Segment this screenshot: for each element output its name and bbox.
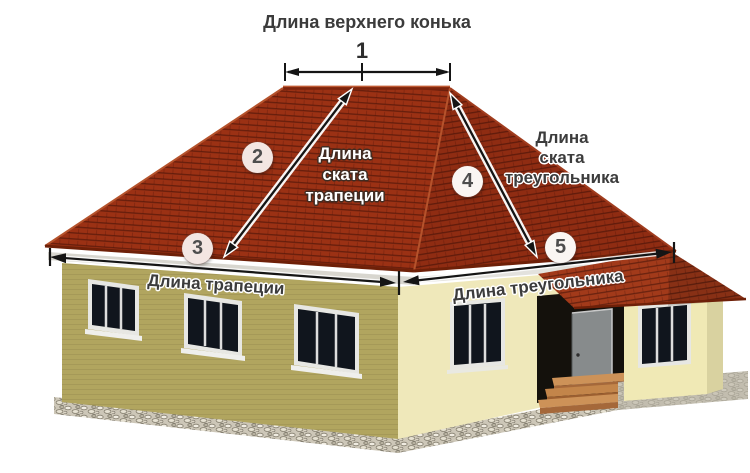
window-5	[638, 301, 691, 368]
label-line: Длина	[505, 128, 619, 148]
porch-roof-shading	[668, 251, 746, 306]
label-line: ската	[505, 148, 619, 168]
door-handle	[576, 353, 579, 356]
house-roof-measurement-diagram: Длина верхнего конька 1 2 3 4 5 Длина ск…	[0, 0, 750, 473]
marker-2: 2	[242, 142, 273, 173]
marker-1: 1	[356, 38, 368, 64]
marker-4: 4	[452, 166, 483, 197]
arrow-ridge-length	[285, 63, 450, 81]
label-trapezoid-slope: Длина ската трапеции	[305, 143, 384, 206]
porch-wall-side	[707, 287, 723, 394]
label-line: ската	[305, 164, 384, 185]
marker-3: 3	[182, 233, 213, 264]
house-illustration	[0, 0, 750, 473]
window-3	[291, 304, 362, 379]
window-2	[181, 293, 245, 361]
diagram-title: Длина верхнего конька	[263, 12, 471, 33]
window-1	[85, 279, 142, 341]
label-line: треугольника	[505, 168, 619, 188]
marker-5: 5	[545, 232, 576, 263]
label-line: Длина	[305, 143, 384, 164]
label-triangle-slope: Длина ската треугольника	[505, 128, 619, 188]
label-line: трапеции	[305, 185, 384, 206]
roof-trapezoid-texture	[45, 88, 450, 271]
window-4	[447, 298, 508, 374]
